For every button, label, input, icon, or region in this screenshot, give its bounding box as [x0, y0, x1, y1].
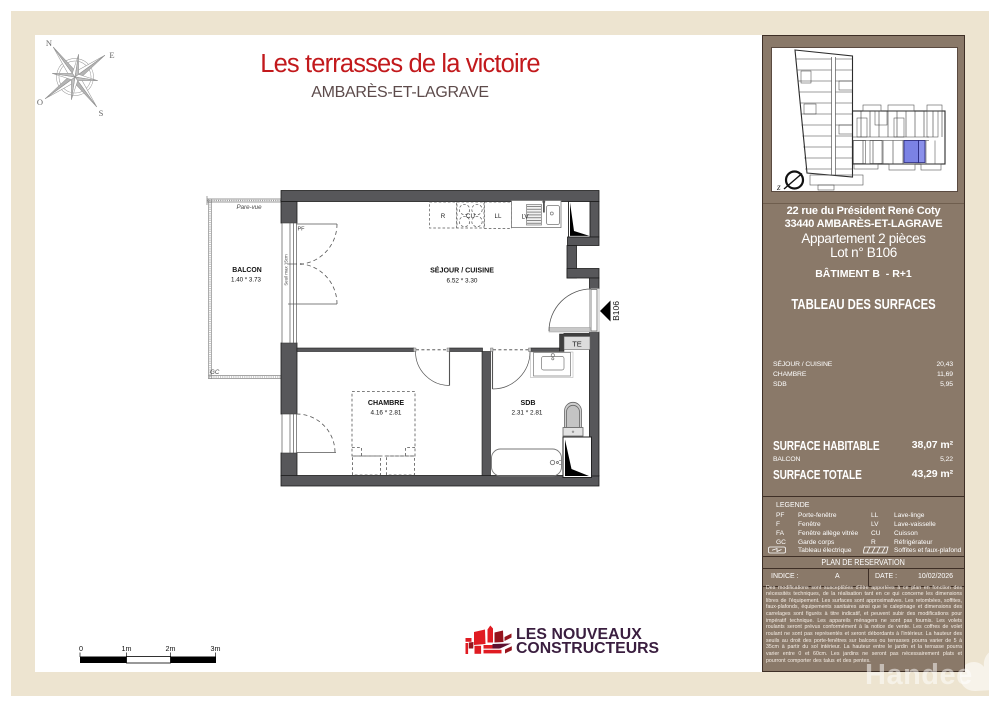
svg-text:E: E	[109, 50, 114, 60]
svg-text:TE: TE	[572, 340, 582, 349]
svg-text:GC: GC	[210, 369, 220, 376]
svg-text:Pare-vue: Pare-vue	[236, 204, 262, 211]
svg-text:1.40 * 3.73: 1.40 * 3.73	[231, 277, 261, 284]
svg-text:S: S	[99, 108, 104, 118]
svg-text:0: 0	[79, 644, 83, 653]
svg-text:2.31 * 2.81: 2.31 * 2.81	[512, 410, 543, 417]
svg-text:2m: 2m	[166, 644, 176, 653]
svg-text:R: R	[441, 213, 446, 220]
svg-text:CONSTRUCTEURS: CONSTRUCTEURS	[516, 640, 659, 657]
svg-text:3m: 3m	[211, 644, 221, 653]
svg-text:LV: LV	[521, 214, 529, 221]
svg-text:PF: PF	[298, 227, 306, 233]
svg-text:LL: LL	[495, 213, 502, 220]
svg-text:CU: CU	[466, 213, 475, 220]
svg-text:Seuil max 15cm: Seuil max 15cm	[284, 254, 289, 286]
svg-text:1m: 1m	[122, 644, 132, 653]
svg-text:CHAMBRE: CHAMBRE	[368, 399, 405, 407]
svg-text:N: N	[46, 38, 52, 48]
svg-text:O: O	[37, 97, 43, 107]
svg-text:4.16 * 2.81: 4.16 * 2.81	[371, 410, 402, 417]
svg-text:SÉJOUR / CUISINE: SÉJOUR / CUISINE	[430, 266, 494, 275]
svg-text:BALCON: BALCON	[232, 267, 261, 274]
svg-text:B106: B106	[611, 301, 621, 321]
svg-text:SDB: SDB	[521, 399, 536, 407]
svg-text:6.52 * 3.30: 6.52 * 3.30	[447, 278, 478, 285]
svg-text:z: z	[776, 183, 781, 191]
